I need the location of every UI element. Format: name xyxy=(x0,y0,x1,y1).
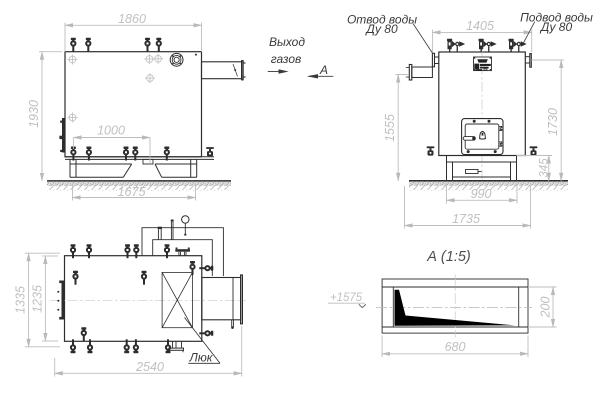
svg-text:1000: 1000 xyxy=(97,124,125,138)
svg-text:1235: 1235 xyxy=(31,285,45,313)
svg-text:Выход: Выход xyxy=(269,35,305,49)
svg-text:А (1:5): А (1:5) xyxy=(426,249,471,265)
svg-text:1930: 1930 xyxy=(27,100,41,128)
svg-text:1675: 1675 xyxy=(118,185,146,199)
svg-text:1735: 1735 xyxy=(452,212,480,226)
svg-text:Люк: Люк xyxy=(189,351,214,365)
svg-text:1730: 1730 xyxy=(546,108,560,136)
svg-text:1860: 1860 xyxy=(118,12,146,26)
svg-text:680: 680 xyxy=(445,340,466,354)
svg-text:1555: 1555 xyxy=(383,114,397,142)
svg-text:А: А xyxy=(319,63,328,77)
svg-text:200: 200 xyxy=(539,297,553,319)
svg-text:+1575: +1575 xyxy=(330,292,363,304)
svg-text:2540: 2540 xyxy=(135,360,164,374)
svg-text:1405: 1405 xyxy=(466,19,494,33)
svg-text:990: 990 xyxy=(471,187,492,201)
svg-text:Ду 80: Ду 80 xyxy=(539,20,573,34)
svg-text:газов: газов xyxy=(271,52,302,66)
svg-text:1335: 1335 xyxy=(14,286,28,314)
svg-text:345: 345 xyxy=(539,158,551,178)
svg-text:Ду 80: Ду 80 xyxy=(364,22,398,36)
